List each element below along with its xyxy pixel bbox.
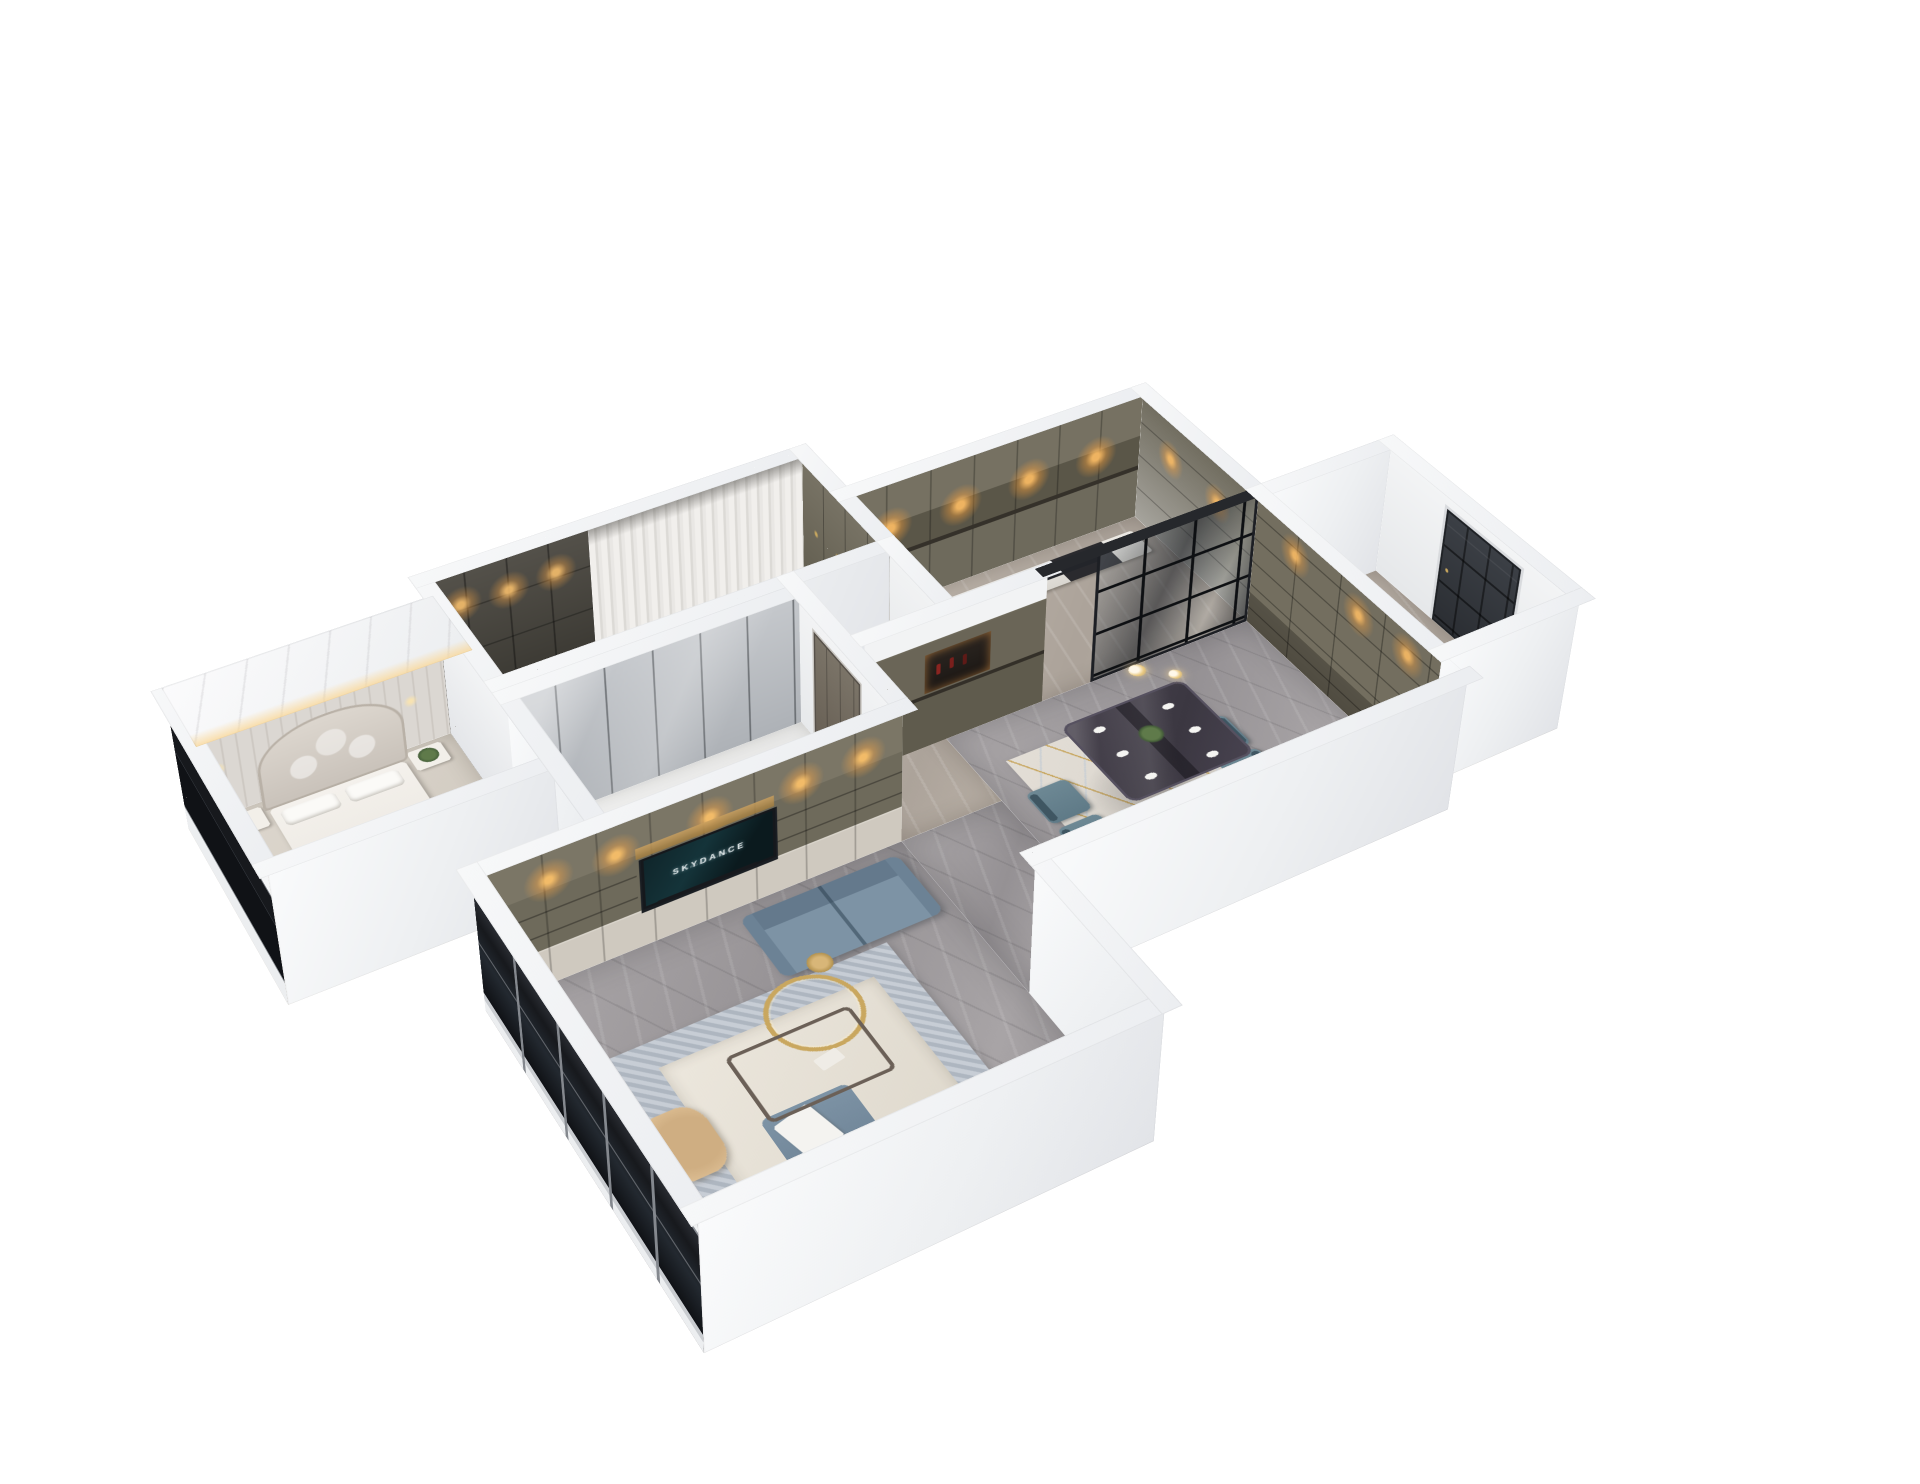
tv-brand-subtext: PRODUCTIONS xyxy=(686,848,733,870)
render-stage: SKYDANCE PRODUCTIONS xyxy=(0,0,1920,1484)
wine-niche xyxy=(925,631,992,694)
media-shelf-right xyxy=(774,751,903,857)
